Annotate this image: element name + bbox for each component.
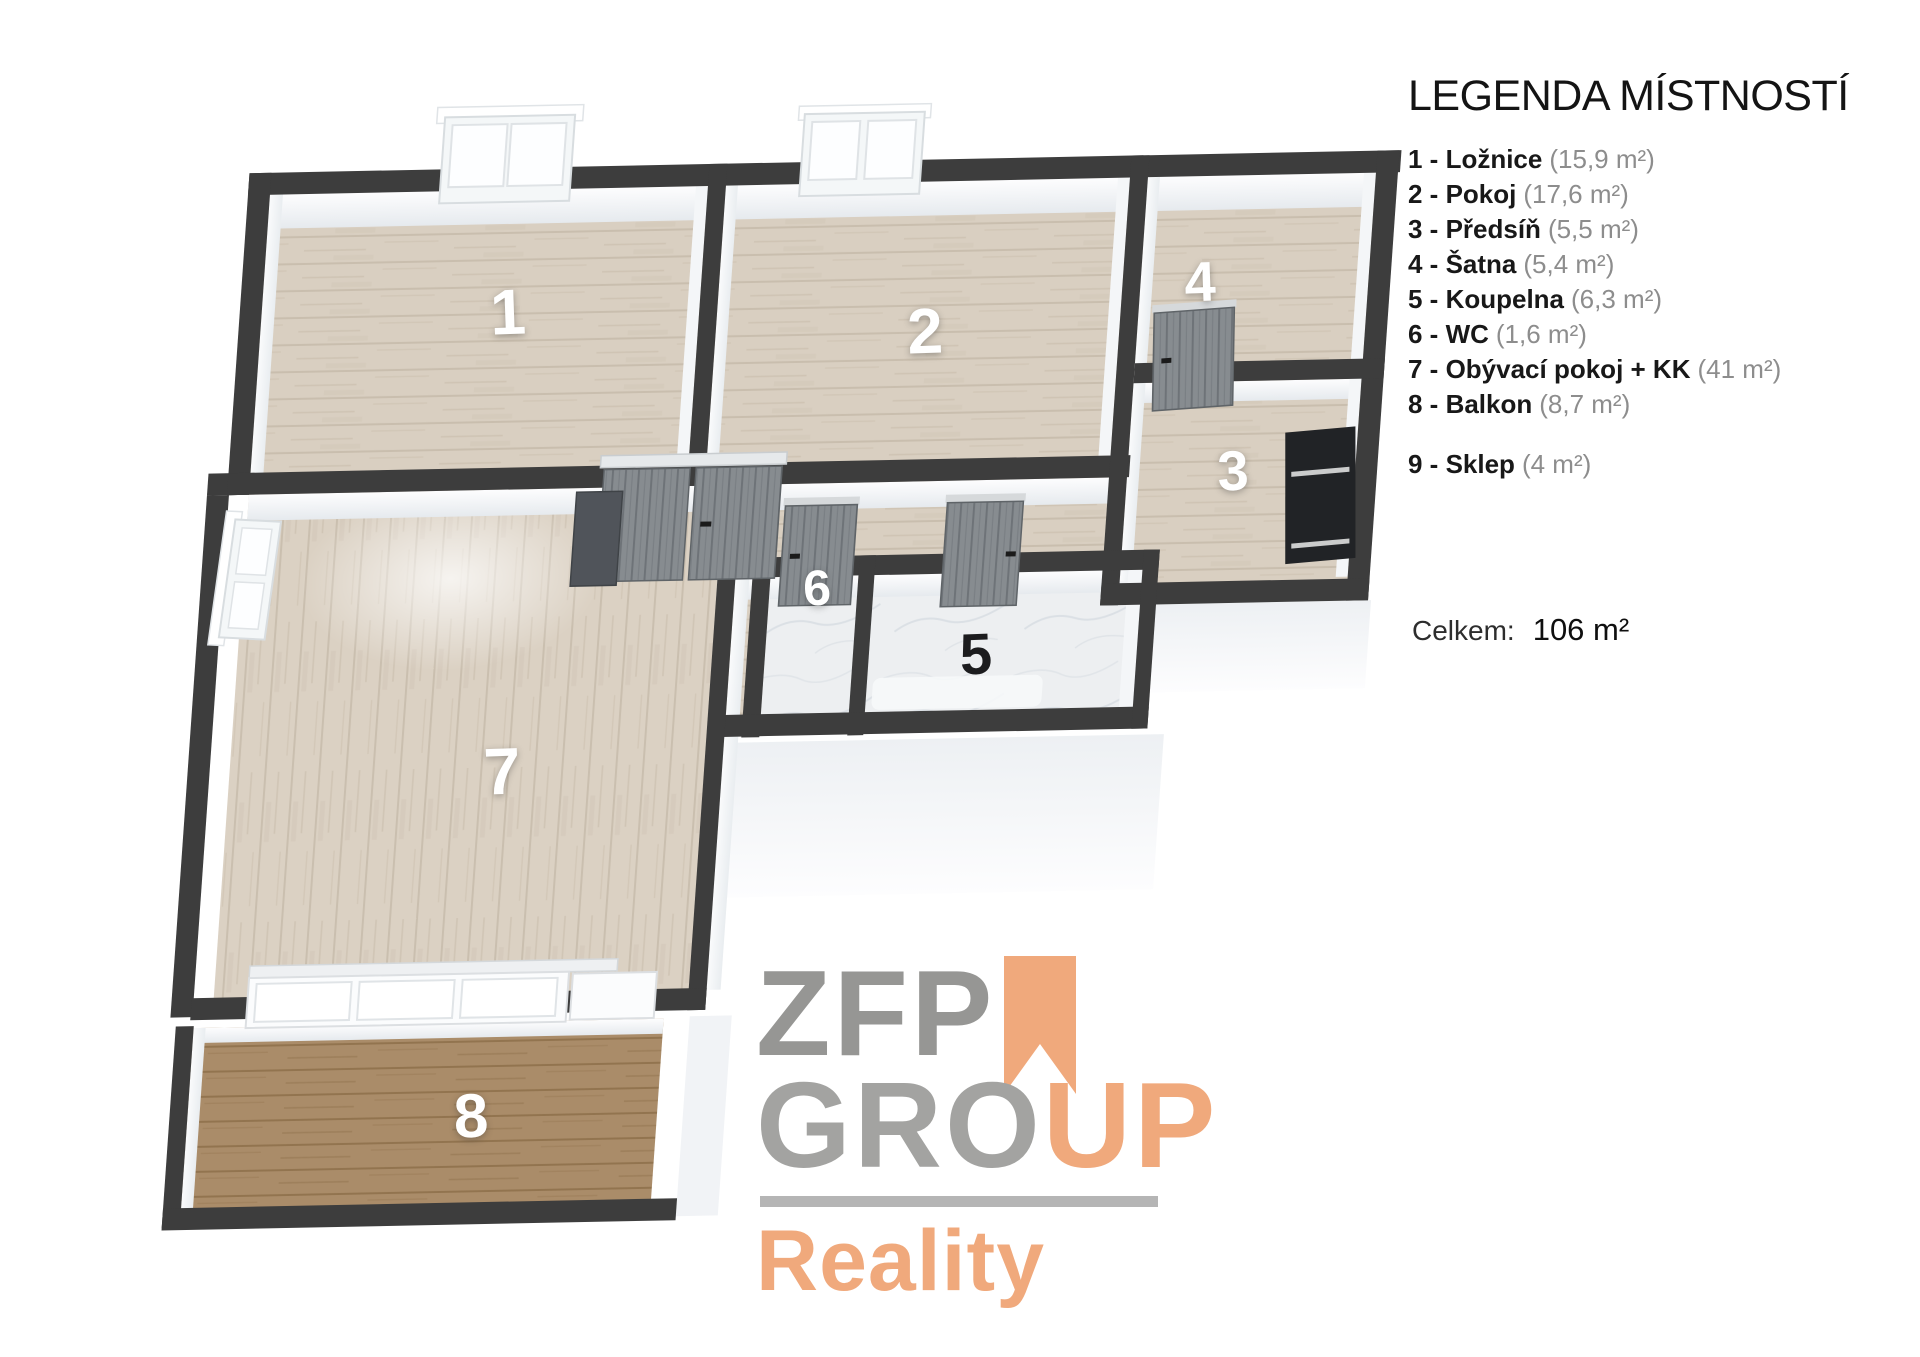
room-8-label: 8 — [453, 1085, 490, 1148]
logo-up-text: UP — [1043, 1057, 1218, 1193]
legend-item-9: 9 - Sklep(4 m²) — [1408, 447, 1888, 482]
legend-item-6: 6 - WC(1,6 m²) — [1408, 317, 1888, 352]
legend-item-5: 5 - Koupelna(6,3 m²) — [1408, 282, 1888, 317]
bathtub — [871, 675, 1043, 710]
logo-gro-text: GRO — [756, 1057, 1043, 1193]
legend-item-1: 1 - Ložnice(15,9 m²) — [1408, 142, 1888, 177]
base-slab — [708, 734, 1164, 898]
logo-reality-text: Reality — [756, 1214, 1045, 1309]
logo-group-text: GROUP — [756, 1064, 1218, 1186]
window-room-2 — [793, 104, 931, 197]
legend-item-2: 2 - Pokoj(17,6 m²) — [1408, 177, 1888, 212]
tall-cabinet-room-7 — [570, 491, 623, 586]
legend-item-8: 8 - Balkon(8,7 m²) — [1408, 387, 1888, 422]
logo-zfp-text: ZFP — [756, 952, 995, 1074]
legend-title: LEGENDA MÍSTNOSTÍ — [1408, 72, 1888, 121]
room-2-label: 2 — [906, 298, 944, 363]
total-value: 106 m² — [1533, 612, 1629, 647]
logo-divider — [760, 1196, 1158, 1207]
room-4-label: 4 — [1183, 253, 1216, 310]
legend-item-4: 4 - Šatna(5,4 m²) — [1408, 247, 1888, 282]
room-5-label: 5 — [959, 625, 993, 684]
room-1-floor — [250, 214, 708, 475]
room-3-label: 3 — [1216, 442, 1249, 499]
total-label: Celkem: — [1412, 615, 1515, 646]
room-1-label: 1 — [489, 279, 527, 344]
legend-item-7: 7 - Obývací pokoj + KK(41 m²) — [1408, 352, 1888, 387]
balcony-slab-edge — [676, 1015, 732, 1216]
legend-item-3: 3 - Předsíň(5,5 m²) — [1408, 212, 1888, 247]
legend-panel: LEGENDA MÍSTNOSTÍ 1 - Ložnice(15,9 m²) 2… — [1408, 72, 1888, 482]
floorplan-page: 1 2 3 4 5 6 7 8 LEGENDA MÍSTNOSTÍ 1 - Lo… — [0, 0, 1920, 1357]
door-bathroom — [938, 493, 1026, 607]
room-7-label: 7 — [483, 737, 522, 804]
window-room-1 — [431, 105, 584, 204]
cabinet-room-3 — [1285, 426, 1355, 564]
legend-total: Celkem:106 m² — [1412, 612, 1629, 648]
balcony-door-unit — [246, 958, 658, 1028]
room-8-floor — [181, 1019, 664, 1210]
door-room-4 — [1150, 299, 1236, 411]
room-6-label: 6 — [802, 563, 832, 614]
legend-list: 1 - Ložnice(15,9 m²) 2 - Pokoj(17,6 m²) … — [1408, 142, 1888, 482]
